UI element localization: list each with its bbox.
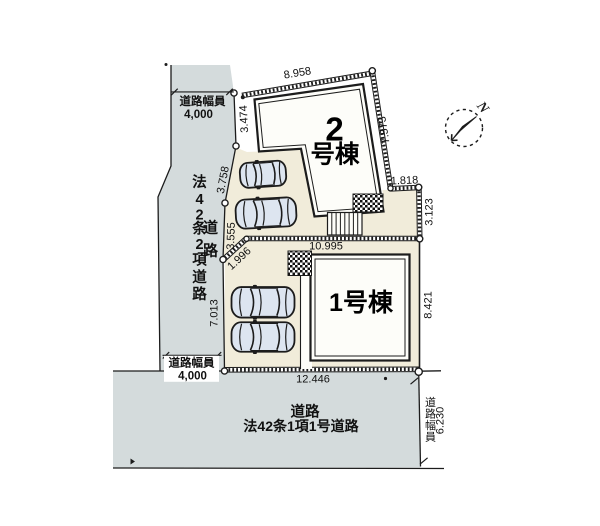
svg-text:4: 4 (195, 192, 203, 208)
svg-text:条: 条 (191, 219, 207, 237)
svg-text:6.230: 6.230 (434, 407, 446, 435)
svg-text:3.555: 3.555 (225, 222, 238, 250)
svg-text:1号棟: 1号棟 (329, 289, 394, 317)
svg-text:4,000: 4,000 (178, 371, 207, 383)
svg-text:8.958: 8.958 (283, 65, 312, 81)
svg-text:3.123: 3.123 (424, 198, 436, 226)
svg-text:7.013: 7.013 (208, 299, 220, 327)
svg-text:道: 道 (192, 268, 207, 286)
svg-text:法: 法 (192, 173, 207, 191)
svg-text:8.421: 8.421 (422, 291, 434, 319)
svg-text:2: 2 (195, 237, 203, 253)
svg-text:路: 路 (192, 285, 207, 303)
svg-text:4,000: 4,000 (184, 109, 213, 121)
svg-text:3.474: 3.474 (238, 105, 251, 133)
svg-text:7.573: 7.573 (376, 115, 392, 144)
svg-text:1.818: 1.818 (390, 174, 418, 187)
svg-text:法42条1項1号道路: 法42条1項1号道路 (243, 418, 359, 434)
svg-text:10.995: 10.995 (309, 241, 343, 253)
svg-text:項: 項 (192, 251, 207, 268)
svg-text:道路幅員: 道路幅員 (169, 356, 215, 370)
svg-text:道路幅員: 道路幅員 (180, 94, 226, 108)
svg-text:号棟: 号棟 (311, 140, 360, 168)
svg-text:12.446: 12.446 (296, 373, 330, 385)
